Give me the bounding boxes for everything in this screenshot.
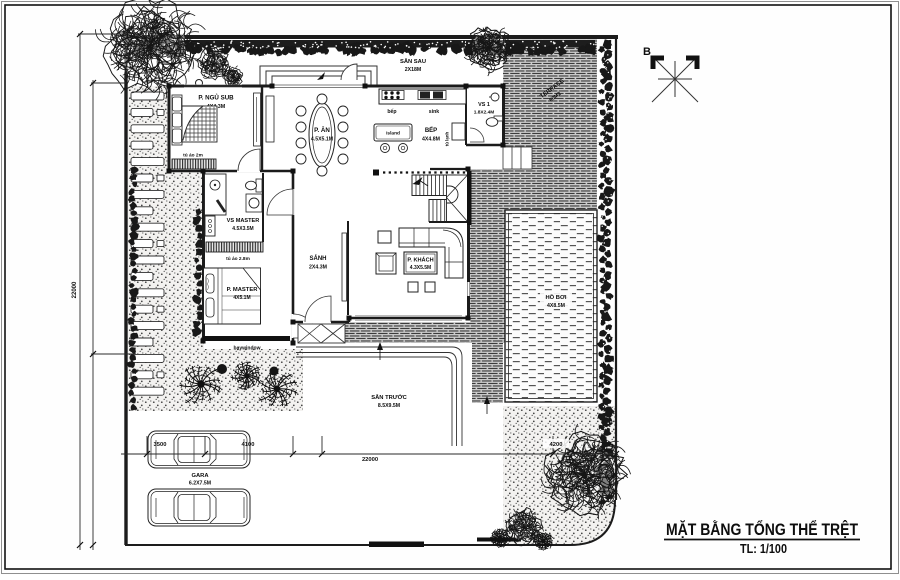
svg-text:sink: sink <box>429 109 439 115</box>
svg-text:22000: 22000 <box>362 457 378 463</box>
svg-text:4200: 4200 <box>550 442 563 448</box>
svg-text:4X4.8M: 4X4.8M <box>422 137 440 143</box>
svg-text:P. MASTER: P. MASTER <box>227 287 259 293</box>
svg-text:bếp: bếp <box>387 108 396 115</box>
svg-text:HỒ BƠI: HỒ BƠI <box>545 294 566 301</box>
svg-text:P. ĂN: P. ĂN <box>314 127 330 134</box>
svg-text:4X5.1M: 4X5.1M <box>233 295 250 301</box>
svg-text:tủ áo 2.8m: tủ áo 2.8m <box>226 256 250 262</box>
svg-text:2X18M: 2X18M <box>405 67 421 73</box>
svg-text:SÂN SAU: SÂN SAU <box>400 58 426 65</box>
svg-text:SẢNH: SẢNH <box>309 255 326 262</box>
svg-text:4.3X5.5M: 4.3X5.5M <box>410 265 431 271</box>
svg-text:3500: 3500 <box>154 442 167 448</box>
svg-text:VS MASTER: VS MASTER <box>227 218 260 224</box>
svg-text:B: B <box>643 46 651 58</box>
svg-text:4X8.5M: 4X8.5M <box>547 303 565 309</box>
svg-text:baywindow: baywindow <box>234 346 261 352</box>
svg-text:4.5X3.5M: 4.5X3.5M <box>232 226 253 232</box>
svg-text:6.2X7.5M: 6.2X7.5M <box>189 481 211 487</box>
svg-text:tủ lạnh: tủ lạnh <box>445 131 450 146</box>
svg-text:22000: 22000 <box>72 281 78 298</box>
svg-text:1.8X2.4M: 1.8X2.4M <box>474 110 495 116</box>
svg-text:tủ áo 2m: tủ áo 2m <box>183 153 203 159</box>
svg-text:P. NGỦ SUB: P. NGỦ SUB <box>198 95 234 102</box>
svg-text:island: island <box>386 131 400 137</box>
svg-text:GARA: GARA <box>191 473 209 479</box>
svg-text:SÂN TRƯỚC: SÂN TRƯỚC <box>371 393 407 401</box>
svg-text:P. KHÁCH: P. KHÁCH <box>407 257 433 264</box>
svg-text:4100: 4100 <box>242 442 255 448</box>
svg-text:4.5X5.1M: 4.5X5.1M <box>311 137 333 143</box>
svg-text:TL: 1/100: TL: 1/100 <box>740 541 787 556</box>
svg-text:VS 1: VS 1 <box>478 102 490 108</box>
svg-text:8.5X9.5M: 8.5X9.5M <box>378 403 400 409</box>
svg-text:BẾP: BẾP <box>425 127 437 134</box>
svg-text:MẶT BẰNG TỔNG THỂ TRỆT: MẶT BẰNG TỔNG THỂ TRỆT <box>666 520 859 539</box>
svg-text:2X4.3M: 2X4.3M <box>309 265 327 271</box>
